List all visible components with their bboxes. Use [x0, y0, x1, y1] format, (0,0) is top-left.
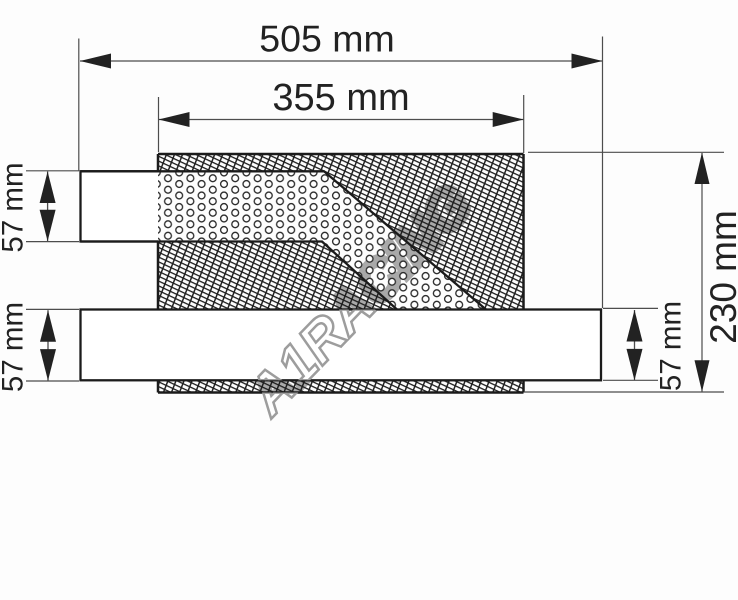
- svg-text:57 mm: 57 mm: [0, 302, 30, 392]
- svg-text:505 mm: 505 mm: [259, 18, 394, 60]
- svg-text:57 mm: 57 mm: [655, 301, 688, 391]
- svg-text:355 mm: 355 mm: [272, 77, 409, 119]
- svg-text:230 mm: 230 mm: [703, 210, 738, 344]
- svg-text:57 mm: 57 mm: [0, 162, 30, 252]
